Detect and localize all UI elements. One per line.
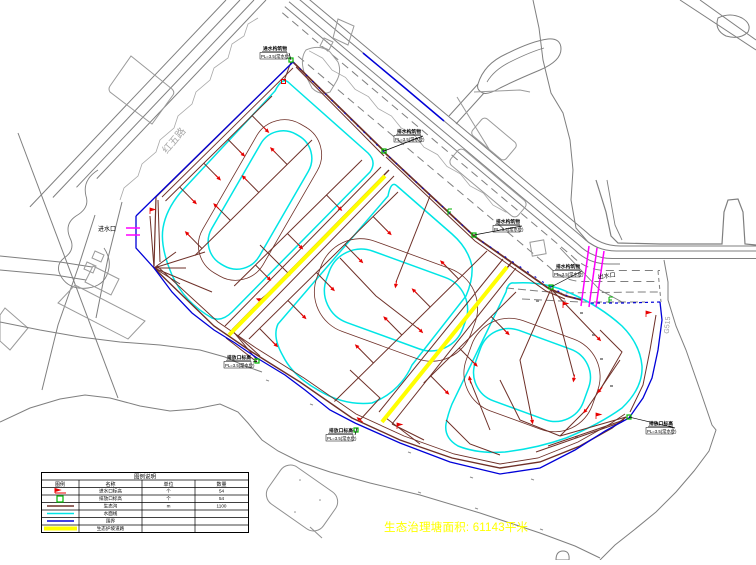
svg-text:54: 54 [219, 489, 225, 494]
svg-text:PL=3.5(常水位): PL=3.5(常水位) [225, 362, 255, 369]
svg-text:PL=3.5(常水位): PL=3.5(常水位) [261, 53, 291, 60]
svg-text:PL=3.5(常水位): PL=3.5(常水位) [494, 226, 524, 233]
svg-text:PL=3.5(常水位): PL=3.5(常水位) [395, 136, 425, 143]
svg-text:生态护坡道路: 生态护坡道路 [97, 525, 125, 532]
svg-text:54: 54 [219, 496, 225, 501]
svg-text:PL=3.5(常水位): PL=3.5(常水位) [554, 271, 584, 278]
svg-text:单位: 单位 [163, 481, 173, 488]
svg-text:排放口标高: 排放口标高 [99, 495, 122, 502]
svg-text:PL=3.5(常水位): PL=3.5(常水位) [647, 428, 677, 435]
svg-text:名称: 名称 [105, 481, 115, 488]
svg-text:1100: 1100 [217, 504, 227, 509]
svg-text:数量: 数量 [216, 481, 226, 488]
svg-text:个: 个 [166, 496, 171, 501]
svg-text:图例说明: 图例说明 [134, 473, 157, 481]
svg-text:生态治理塘面积: 61143平米: 生态治理塘面积: 61143平米 [384, 520, 529, 534]
svg-text:进水口标高: 进水口标高 [99, 488, 122, 495]
svg-text:PL=3.5(常水位): PL=3.5(常水位) [327, 435, 357, 442]
svg-text:水面线: 水面线 [104, 510, 118, 517]
svg-text:m: m [167, 504, 171, 509]
svg-text:图例: 图例 [55, 481, 65, 488]
svg-text:进水口: 进水口 [98, 225, 116, 233]
svg-text:G515: G515 [664, 316, 672, 334]
svg-text:生态沟: 生态沟 [104, 503, 118, 510]
svg-text:个: 个 [166, 489, 171, 494]
